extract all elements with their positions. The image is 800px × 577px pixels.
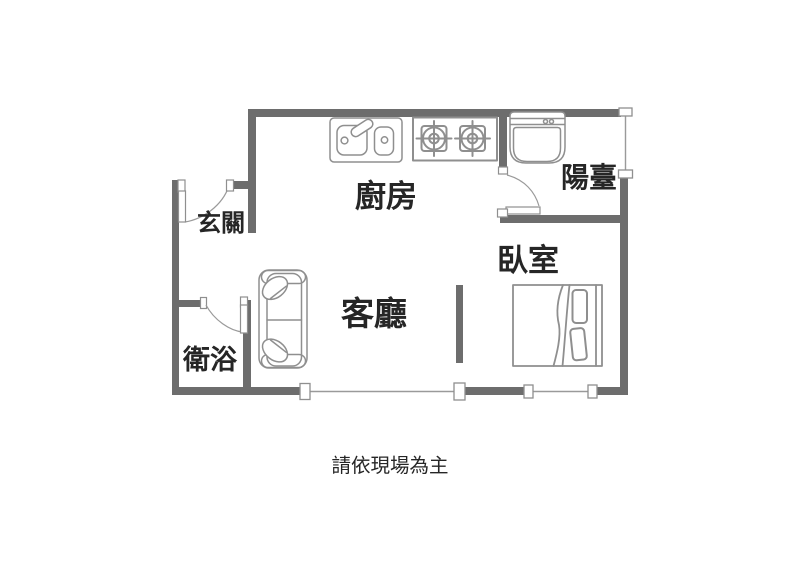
- wall-bottom-left: [172, 387, 302, 395]
- stove-burner: [455, 121, 490, 156]
- entry-label: 玄關: [197, 209, 245, 237]
- kitchen-label: 廚房: [355, 179, 417, 214]
- window-mullion: [588, 385, 597, 398]
- washing-machine-icon: [510, 112, 565, 163]
- window-mullion: [619, 170, 633, 178]
- wall-balcony-divider: [499, 109, 507, 167]
- bedroom-label: 臥室: [497, 243, 559, 278]
- bed-pillow: [570, 328, 587, 361]
- wall-bathroom-top: [172, 300, 203, 307]
- floor-plan-page: 廚房 陽臺 玄關 臥室 客廳 衛浴 請依現場為主: [0, 0, 800, 577]
- door-leaf: [179, 191, 186, 222]
- wall-balcony-south: [500, 215, 621, 223]
- double-bed-icon: [513, 285, 602, 366]
- living-room-label: 客廳: [341, 295, 407, 332]
- door-jamb: [178, 180, 185, 192]
- drain-hole: [381, 137, 387, 143]
- window-mullion: [619, 108, 632, 116]
- door-swing-arc: [507, 175, 539, 206]
- door-leaf: [241, 305, 248, 333]
- door-jamb: [498, 209, 508, 217]
- wall-right: [620, 176, 628, 395]
- sofa-icon: [258, 270, 307, 368]
- balcony-label: 陽臺: [561, 162, 617, 193]
- wall-bottom-mid: [463, 387, 527, 395]
- door-jamb: [227, 180, 234, 191]
- bathroom-label: 衛浴: [182, 344, 238, 375]
- floor-plan: 廚房 陽臺 玄關 臥室 客廳 衛浴 請依現場為主: [0, 0, 800, 577]
- door-jamb: [499, 167, 508, 174]
- kitchen-sink-icon: [330, 118, 402, 162]
- washer-tub: [514, 128, 561, 162]
- door-leaf: [506, 207, 540, 214]
- caption: 請依現場為主: [331, 455, 448, 477]
- balcony-door: [498, 167, 541, 217]
- door-swing-arc: [206, 305, 243, 332]
- door-jamb: [201, 298, 207, 309]
- wall-kitchen-left: [248, 109, 256, 233]
- wall-entry-stub: [232, 181, 256, 189]
- gas-stove-icon: [413, 118, 497, 161]
- window-mullion: [454, 383, 465, 400]
- drain-hole: [341, 137, 348, 144]
- window-mullion: [300, 384, 310, 400]
- wall-bedroom-partition: [456, 285, 463, 363]
- window-mullion: [524, 385, 533, 398]
- bed-pillow: [573, 290, 588, 323]
- stove-burner: [417, 121, 452, 156]
- bathroom-door: [201, 297, 248, 333]
